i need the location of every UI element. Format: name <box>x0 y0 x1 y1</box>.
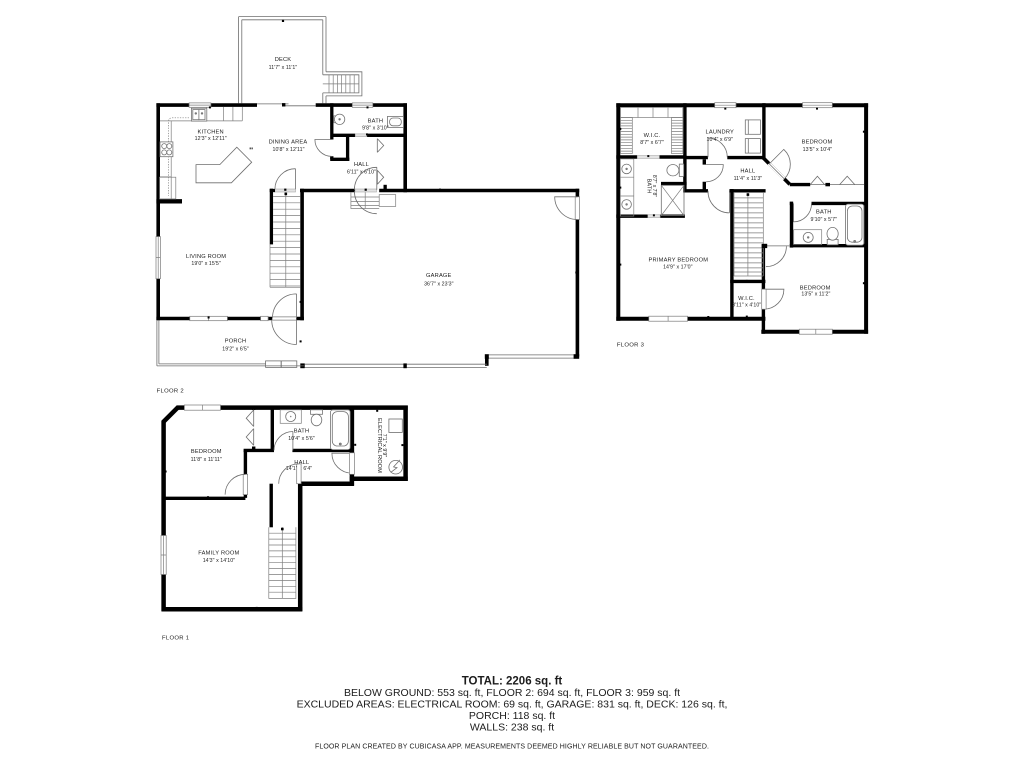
svg-text:DINING AREA: DINING AREA <box>269 139 308 145</box>
svg-text:19'2" x 6'5": 19'2" x 6'5" <box>222 347 249 353</box>
svg-text:EXCLUDED AREAS: ELECTRICAL ROO: EXCLUDED AREAS: ELECTRICAL ROOM: 69 sq. … <box>297 699 728 711</box>
svg-text:8'7" x 6'7": 8'7" x 6'7" <box>640 140 664 146</box>
svg-text:BEDROOM: BEDROOM <box>802 140 833 146</box>
svg-text:10'4" x 5'6": 10'4" x 5'6" <box>288 436 315 442</box>
svg-text:W.I.C.: W.I.C. <box>738 296 755 302</box>
svg-text:36'7" x 23'3": 36'7" x 23'3" <box>424 282 454 288</box>
svg-text:14'9" x 17'0": 14'9" x 17'0" <box>663 265 693 271</box>
svg-text:FAMILY ROOM: FAMILY ROOM <box>198 551 239 557</box>
svg-text:BEDROOM: BEDROOM <box>800 285 831 291</box>
svg-text:19'0" x 15'5": 19'0" x 15'5" <box>191 261 221 267</box>
svg-text:W.I.C.: W.I.C. <box>644 133 661 139</box>
svg-text:LIVING ROOM: LIVING ROOM <box>186 254 226 260</box>
svg-text:FLOOR 3: FLOOR 3 <box>617 343 645 349</box>
svg-text:BATH: BATH <box>646 179 652 194</box>
svg-text:FLOOR 1: FLOOR 1 <box>162 636 189 642</box>
svg-text:TOTAL: 2206 sq. ft: TOTAL: 2206 sq. ft <box>462 676 563 688</box>
svg-text:DECK: DECK <box>275 57 292 63</box>
svg-text:HALL: HALL <box>354 162 369 168</box>
svg-text:10'4" x 6'9": 10'4" x 6'9" <box>707 137 734 143</box>
svg-text:BATH: BATH <box>294 429 310 435</box>
svg-text:11'7" x 11'1": 11'7" x 11'1" <box>269 65 298 71</box>
svg-text:WALLS: 238 sq. ft: WALLS: 238 sq. ft <box>470 722 554 734</box>
svg-text:PORCH: PORCH <box>225 339 247 345</box>
svg-text:10'8" x 12'11": 10'8" x 12'11" <box>272 147 304 153</box>
svg-text:FLOOR PLAN CREATED BY CUBICASA: FLOOR PLAN CREATED BY CUBICASA APP. MEAS… <box>315 744 709 751</box>
svg-text:13'5" x 11'2": 13'5" x 11'2" <box>801 292 830 298</box>
svg-text:PORCH: 118 sq. ft: PORCH: 118 sq. ft <box>469 710 555 722</box>
svg-text:12'3" x 12'11": 12'3" x 12'11" <box>195 136 227 142</box>
svg-text:9'10" x 5'7": 9'10" x 5'7" <box>811 217 838 223</box>
svg-text:LAUNDRY: LAUNDRY <box>706 130 734 136</box>
svg-text:8'7" x 7'8": 8'7" x 7'8" <box>651 175 657 197</box>
svg-text:FLOOR 2: FLOOR 2 <box>157 389 184 395</box>
svg-text:6'11" x 6'10": 6'11" x 6'10" <box>347 169 376 175</box>
svg-text:BATH: BATH <box>816 210 832 216</box>
svg-text:14'3" x 14'10": 14'3" x 14'10" <box>203 558 235 564</box>
svg-text:GARAGE: GARAGE <box>426 273 452 279</box>
svg-text:ELECTRICAL ROOM: ELECTRICAL ROOM <box>376 418 382 473</box>
svg-text:BATH: BATH <box>368 118 384 124</box>
svg-text:BELOW GROUND: 553 sq. ft, FLOO: BELOW GROUND: 553 sq. ft, FLOOR 2: 694 s… <box>344 687 680 699</box>
svg-text:11'8" x 11'11": 11'8" x 11'11" <box>191 457 222 463</box>
svg-text:KITCHEN: KITCHEN <box>198 130 224 136</box>
svg-text:HALL: HALL <box>740 169 755 175</box>
svg-text:13'5" x 10'4": 13'5" x 10'4" <box>803 147 833 153</box>
svg-text:3'11" x 4'10": 3'11" x 4'10" <box>732 302 761 308</box>
svg-text:BEDROOM: BEDROOM <box>191 449 222 455</box>
svg-text:9'8" x 3'10": 9'8" x 3'10" <box>362 125 389 131</box>
svg-text:7'1" x 9'9": 7'1" x 9'9" <box>381 434 387 458</box>
svg-text:11'4" x 11'3": 11'4" x 11'3" <box>734 176 763 182</box>
svg-text:PRIMARY BEDROOM: PRIMARY BEDROOM <box>649 258 709 264</box>
